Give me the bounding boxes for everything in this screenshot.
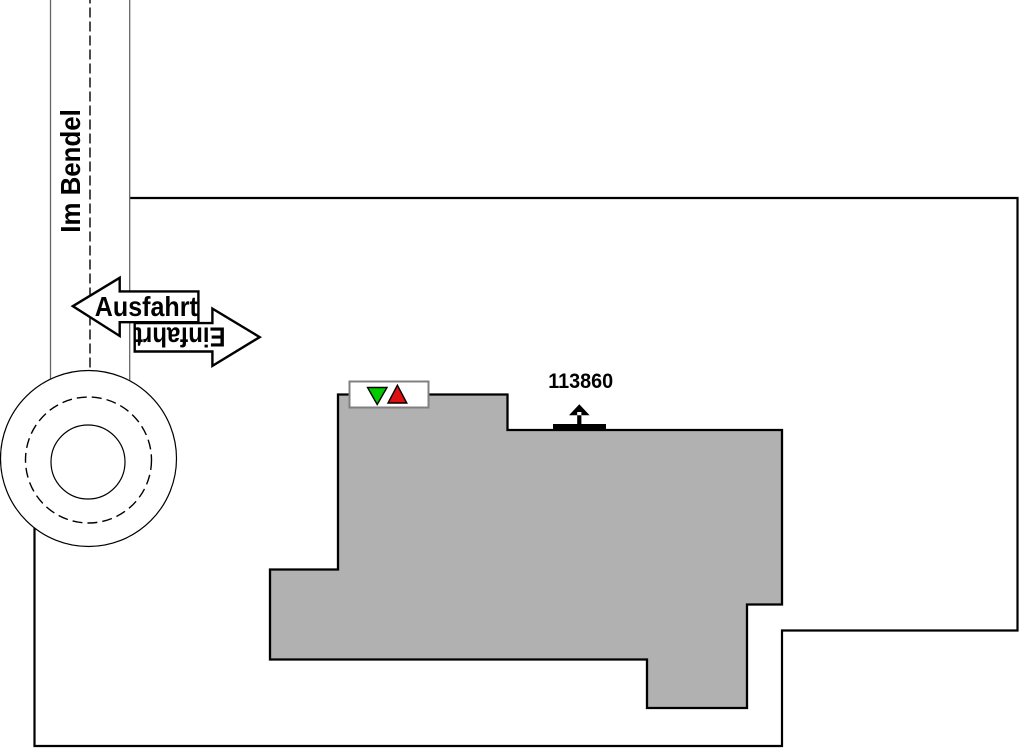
svg-text:Einfahrt: Einfahrt — [135, 321, 226, 352]
svg-text:113860: 113860 — [548, 369, 613, 393]
svg-text:Im Bendel: Im Bendel — [55, 109, 86, 233]
svg-text:Ausfahrt: Ausfahrt — [95, 291, 198, 322]
